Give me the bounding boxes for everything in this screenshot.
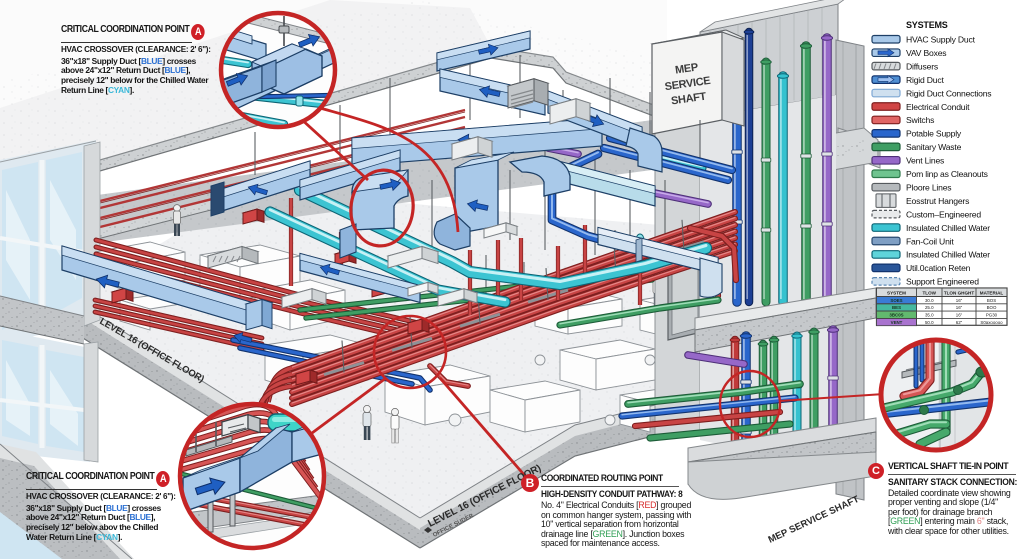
svg-text:S0axooooo: S0axooooo <box>980 320 1003 325</box>
svg-text:SYSTEM: SYSTEM <box>887 290 906 295</box>
svg-text:SYSTEMS: SYSTEMS <box>906 20 948 30</box>
svg-text:MATERIAL: MATERIAL <box>980 290 1004 295</box>
svg-text:Electrical Conduit: Electrical Conduit <box>906 102 970 112</box>
svg-text:16": 16" <box>956 313 963 318</box>
svg-text:Potable Supply: Potable Supply <box>906 129 962 139</box>
svg-text:35.0: 35.0 <box>925 313 934 318</box>
svg-text:50.0: 50.0 <box>925 320 934 325</box>
svg-text:Insulated Chilled Water: Insulated Chilled Water <box>906 250 990 260</box>
svg-text:62": 62" <box>956 320 963 325</box>
svg-text:25.0: 25.0 <box>925 305 934 310</box>
svg-text:3BC0S: 3BC0S <box>889 313 903 318</box>
svg-text:MEP SERVICE SHAFT: MEP SERVICE SHAFT <box>767 494 861 546</box>
svg-text:Switchs: Switchs <box>906 115 934 125</box>
svg-text:VENT: VENT <box>891 320 903 325</box>
svg-text:SOES: SOES <box>890 298 902 303</box>
svg-text:Sanitary Waste: Sanitary Waste <box>906 142 962 152</box>
svg-text:VAV Boxes: VAV Boxes <box>906 48 946 58</box>
svg-text:Custom–Engineered: Custom–Engineered <box>906 209 981 219</box>
svg-text:Eosstrut Hangers: Eosstrut Hangers <box>906 196 969 206</box>
svg-text:Rigid Duct: Rigid Duct <box>906 75 944 85</box>
svg-text:TLON GHGHT: TLON GHGHT <box>944 290 975 295</box>
svg-text:Util.0cation Reten: Util.0cation Reten <box>906 263 971 273</box>
svg-text:HVAC Supply Duct: HVAC Supply Duct <box>906 35 976 45</box>
svg-text:Vent Lines: Vent Lines <box>906 156 944 166</box>
svg-text:BOS: BOS <box>987 298 996 303</box>
svg-text:Rigid Duct Connections: Rigid Duct Connections <box>906 88 991 98</box>
svg-text:BES: BES <box>892 305 901 310</box>
svg-text:PG30: PG30 <box>986 313 998 318</box>
svg-text:Support Engineered: Support Engineered <box>906 277 979 287</box>
svg-text:16": 16" <box>956 298 963 303</box>
svg-text:30.0: 30.0 <box>925 298 934 303</box>
svg-text:Ploore Lines: Ploore Lines <box>906 182 951 192</box>
svg-text:BOO: BOO <box>987 305 997 310</box>
svg-text:Pom linp as Cleanouts: Pom linp as Cleanouts <box>906 169 988 179</box>
svg-text:Fan-Coil Unit: Fan-Coil Unit <box>906 236 954 246</box>
svg-text:TLOW: TLOW <box>922 290 936 295</box>
svg-text:16": 16" <box>956 305 963 310</box>
svg-text:Insulated Chilled Water: Insulated Chilled Water <box>906 223 990 233</box>
svg-text:Diffusers: Diffusers <box>906 61 938 71</box>
